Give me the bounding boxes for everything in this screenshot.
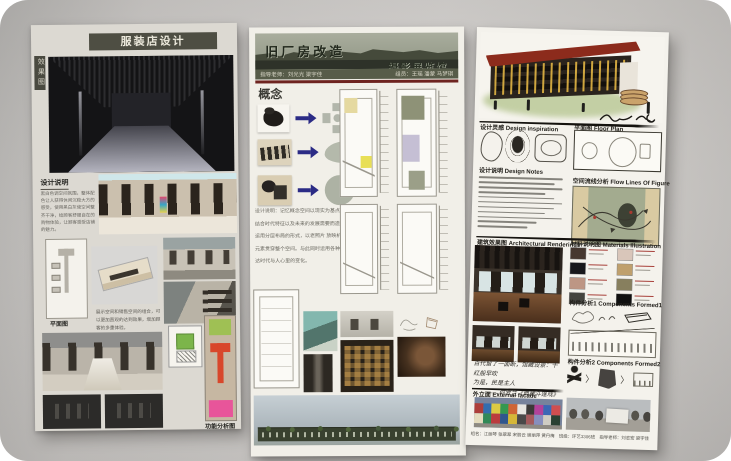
clothing-racks (99, 183, 237, 216)
floor-plan-lower-1 (340, 204, 378, 294)
hand-sketches (397, 312, 443, 334)
plan-zone (409, 170, 424, 189)
plan-outline-sketch (534, 134, 567, 163)
walking-figure-sketch (567, 366, 582, 390)
green-material-patch (176, 334, 194, 350)
projector-body (273, 185, 287, 199)
dimension-ticks (439, 206, 448, 290)
figure-silhouette (582, 103, 585, 112)
interior-photo-teal (303, 311, 337, 351)
camera-photo (257, 104, 289, 132)
interior-photo-shelves (340, 340, 393, 392)
board-exhibition-hall: 设计灵感 Design inspiration 平面图 Floor Plan 设… (465, 27, 669, 450)
tree-silhouettes (569, 409, 577, 419)
render-shelving (203, 289, 232, 312)
credits-line: 组名：江丽琴 张翠翠 宋丽云 谢丽萍 黄丹梅 班级：环艺3306班 指导老师：刘… (471, 431, 653, 442)
long-floor-plan (253, 289, 299, 388)
function-analysis-label: 功能分析图 (187, 421, 253, 431)
white-banner (606, 408, 629, 423)
store-interior-render (98, 173, 237, 234)
material-swatch (617, 264, 656, 276)
texture-patch-sketch (598, 369, 617, 389)
corridor-light-slit (201, 90, 205, 154)
material-swatch (570, 263, 609, 275)
concept-row-camera (257, 103, 352, 133)
flow-arrows (572, 187, 660, 245)
hatch-detail (176, 351, 196, 363)
material-swatch (570, 278, 609, 290)
design-notes-heading: 设计说明 (40, 178, 68, 190)
render-side-label: 效果图 (34, 56, 45, 90)
components2-sketches: 〉 〉 (567, 364, 654, 394)
board-factory-renovation: 旧厂房改造 摄影展览馆 指导老师：刘光光 梁宇佳 组员：王瑶 潘蒙 马梦琪 概念… (249, 27, 466, 457)
plan-diagonal (343, 147, 375, 190)
interior-rendering-small-1 (472, 325, 515, 362)
transform-arrow: 〉 (620, 373, 629, 386)
dimension-ticks (380, 206, 389, 290)
signature-squiggle (596, 107, 660, 123)
plan-rack (51, 275, 60, 281)
coffered-ceiling (474, 245, 563, 270)
arrow-right-icon (295, 112, 316, 124)
film-strip-photo (258, 139, 292, 165)
factory-panorama-photo: 旧厂房改造 摄影展览馆 (255, 33, 458, 70)
team-text: 组员：王瑶 潘蒙 马梦琪 (395, 70, 453, 78)
projector-photo (258, 175, 292, 205)
plan-diagonal (343, 252, 375, 287)
eye-scribble-sketch (505, 130, 530, 163)
film-icon (260, 144, 290, 160)
interior-photo-alley (303, 354, 332, 392)
flow-lines-diagram (571, 186, 661, 246)
interior-photo-tunnel (397, 337, 445, 377)
store-floor-plan (45, 239, 88, 319)
floor-plan-lower-2 (397, 204, 437, 294)
floor-plan-upper-2 (396, 89, 436, 197)
runway-interior-render (42, 332, 163, 391)
corridor-render-image (48, 55, 234, 173)
facade-collage-photo (474, 397, 563, 429)
credits-strip: 指导老师：刘光光 梁宇佳 组员：王瑶 潘蒙 马梦琪 (255, 69, 458, 80)
color-clothing-stack (159, 196, 166, 212)
corridor-light-slit (78, 91, 82, 155)
plan-zone (403, 134, 420, 162)
floor-plan-label: 平面图 (50, 319, 68, 328)
building-illustration (478, 32, 664, 123)
main-floor-plan (573, 130, 662, 172)
night-render-1 (43, 394, 101, 429)
dimension-ticks (438, 91, 447, 193)
long-building-elevation (258, 427, 456, 442)
components1-elevation-sketch (568, 330, 657, 358)
corridor-floor (67, 125, 215, 173)
interior-photo-exhibit (340, 311, 393, 337)
left-board-title: 服装店设计 (89, 32, 217, 50)
figure-silhouette (527, 100, 530, 111)
bench-block (519, 298, 530, 307)
facade-gray-photo (566, 398, 651, 432)
plan-rack (51, 287, 60, 293)
advisors-text: 指导老师：刘光光 梁宇佳 (260, 70, 322, 78)
zone-green (209, 319, 231, 335)
concept-heading: 概念 (258, 85, 282, 102)
elevation-panorama (254, 395, 460, 446)
plan-zone (401, 96, 424, 119)
section-detail-drawing (168, 325, 202, 367)
zone-red-stem (217, 343, 223, 383)
axonometric-render (91, 246, 158, 305)
red-divider (255, 80, 458, 84)
function-analysis-diagram (204, 315, 237, 421)
floor-plan-upper-1 (339, 89, 377, 197)
arrow-right-icon (298, 184, 319, 196)
transform-arrow: 〉 (585, 372, 594, 385)
design-notes-paragraph (477, 173, 563, 233)
window-slits (479, 271, 557, 293)
warm-floor (473, 292, 562, 323)
camera-icon (263, 110, 284, 126)
design-notes-text: 黑白色调空间氛围，整体配色让人获得休闲沉稳大方的感受，使用黑白灰使空间整齐干净，… (41, 189, 95, 233)
middle-board-title: 旧厂房改造 (265, 41, 345, 60)
interior-rendering-small-2 (518, 326, 561, 363)
arrow-right-icon (298, 146, 319, 158)
bean-sketch (480, 131, 503, 162)
bench-block (498, 302, 509, 311)
plan-rack (51, 263, 60, 269)
plan-room-oval (581, 142, 597, 160)
material-swatch (571, 248, 610, 260)
plan-runway-stem (64, 249, 69, 293)
board-clothing-store: 服装店设计 效果图 设计说明 黑白色调空间氛围，整体配色让人获得休闲沉稳大方的感… (31, 23, 241, 431)
render-displays (169, 250, 230, 265)
sketch-stack-doodle (620, 89, 646, 104)
wall-photo: 服装店设计 效果图 设计说明 黑白色调空间氛围，整体配色让人获得休闲沉稳大方的感… (0, 0, 731, 461)
figure-silhouette (493, 101, 496, 110)
interior-rendering-large (473, 245, 563, 323)
plan-room-rect (640, 144, 651, 159)
dimension-ticks (379, 91, 388, 193)
spatial-note-text: 展示空间和销售空间的组合，可以更加直观的达到效果，增加顾客的多重体验。 (96, 308, 162, 332)
plan-diagonal (400, 252, 434, 287)
material-swatch (618, 249, 657, 261)
night-render-2 (105, 394, 163, 429)
material-swatch (617, 279, 656, 291)
plan-zone (345, 98, 357, 113)
zone-pink (209, 400, 233, 417)
plan-room-oval (609, 136, 638, 167)
facade-strip-sketch (633, 373, 653, 388)
interior-render-small-1 (163, 237, 235, 280)
